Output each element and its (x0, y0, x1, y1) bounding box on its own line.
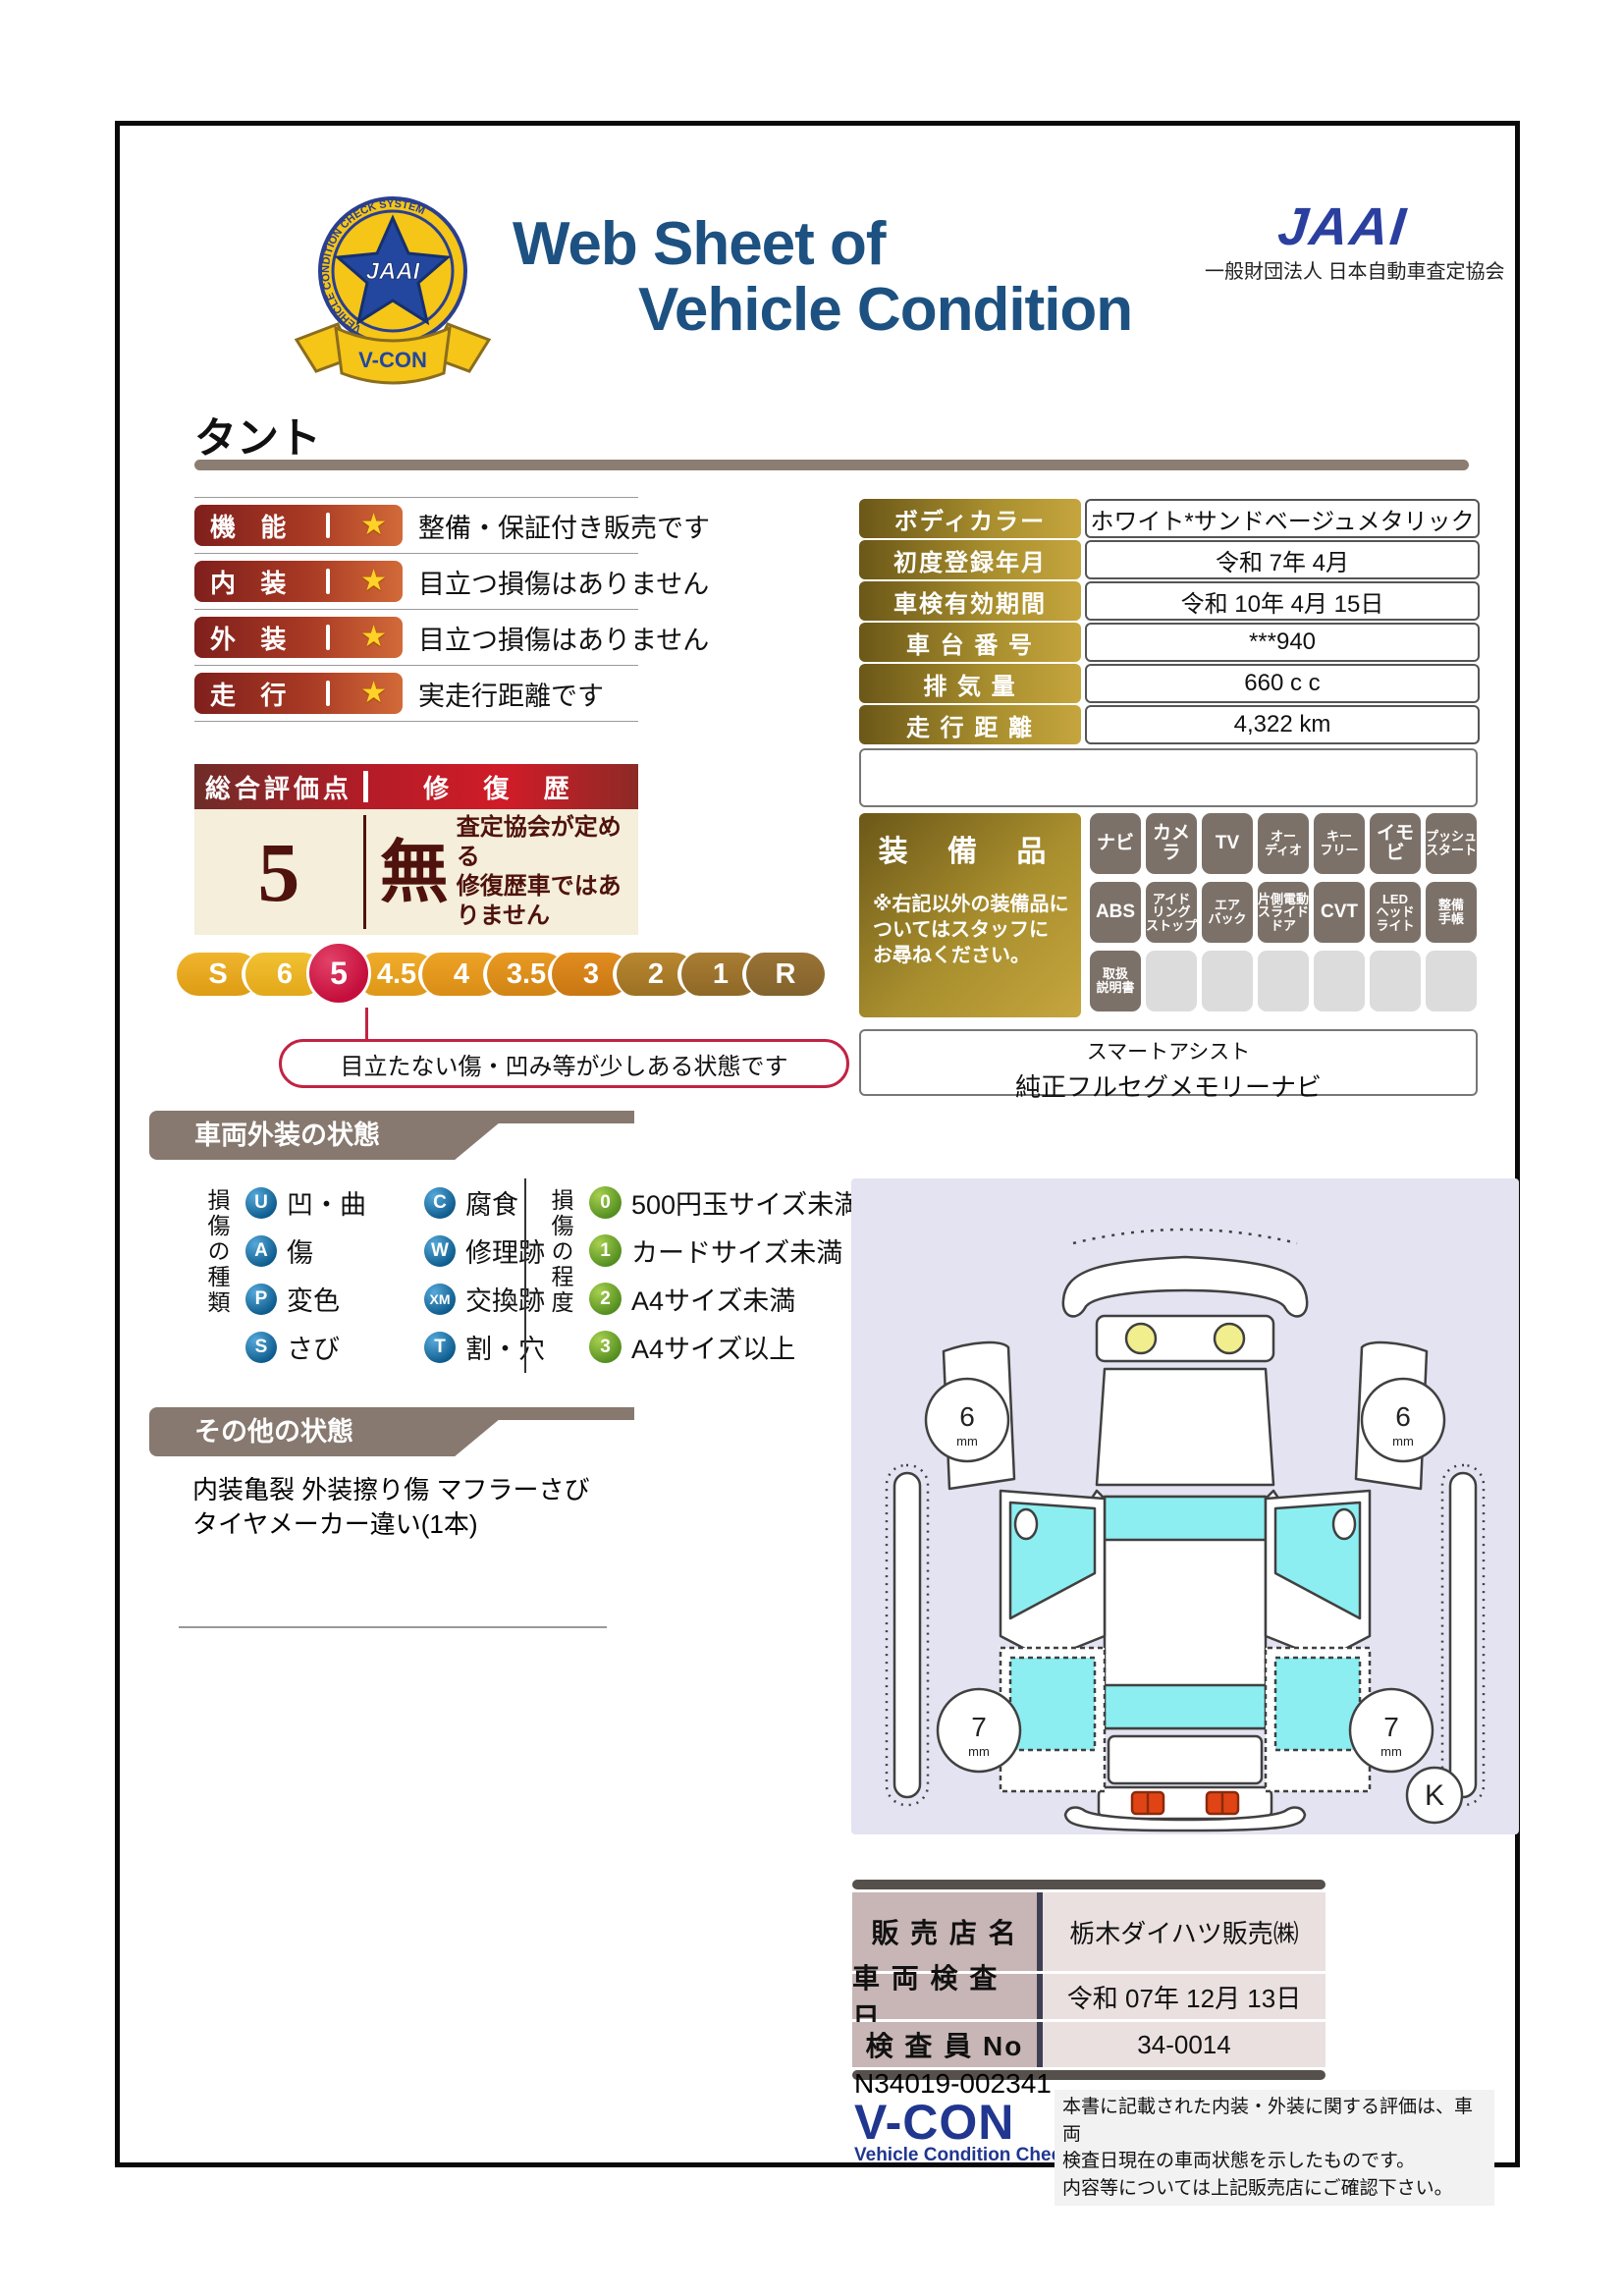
info-value: ホワイト*サンドベージュメタリック (1085, 499, 1480, 538)
table-row: 走 行 距 離 4,322 km (859, 705, 1480, 744)
equipment-extra-line1: スマートアシスト (861, 1036, 1476, 1066)
info-empty-row (859, 748, 1478, 807)
front-bumper (1063, 1257, 1307, 1316)
equipment-item-immobilizer: イモビ (1370, 813, 1421, 874)
overall-score-title: 総合評価点 (194, 769, 363, 805)
model-name: タント (194, 405, 321, 465)
scale-seg-5-selected: 5 (306, 941, 371, 1006)
info-value: 令和 7年 4月 (1085, 540, 1480, 579)
damage-type-icon-xm: XM (424, 1284, 456, 1315)
damage-degree-axis: 損傷の程度 (544, 1188, 577, 1361)
rating-comment: 実走行距離です (418, 675, 604, 713)
rating-comment: 目立つ損傷はありません (418, 619, 709, 657)
table-row: 車 両 検 査 日 令和 07年 12月 13日 (852, 1974, 1325, 2019)
scale-seg-r: R (742, 953, 825, 996)
equipment-item-empty (1146, 951, 1197, 1011)
damage-type-icon-c: C (424, 1187, 456, 1219)
legend-row: 0 500円玉サイズ未満 (589, 1178, 860, 1227)
score-description-bubble: 目立たない傷・凹み等が少しある状態です (279, 1039, 849, 1088)
bubble-stem (365, 1008, 368, 1041)
rating-row-exterior: 外 装 ★ 目立つ損傷はありません (194, 609, 638, 665)
equipment-item-pushstart: プッシュ スタート (1426, 813, 1477, 874)
tailgate (1109, 1736, 1262, 1783)
rating-row-mileage: 走 行 ★ 実走行距離です (194, 665, 638, 722)
info-value: ***940 (1085, 623, 1480, 662)
inspection-marker: K (1425, 1779, 1444, 1812)
mirror-left (1015, 1509, 1037, 1539)
legend-row: 1 カードサイズ未満 (589, 1227, 860, 1275)
tire-depth-rear-left: 7 (971, 1712, 987, 1742)
vehicle-info-table: ボディカラー ホワイト*サンドベージュメタリック 初度登録年月 令和 7年 4月… (859, 499, 1480, 746)
damage-type-icon-a: A (245, 1235, 277, 1267)
rear-door-window-left (1010, 1658, 1095, 1750)
equipment-item-cvt: CVT (1314, 882, 1365, 943)
tire-depth-rear-right: 7 (1383, 1712, 1399, 1742)
equipment-item-led: LED ヘッド ライト (1370, 882, 1421, 943)
legend-row: U 凹・曲 C 腐食 (245, 1178, 545, 1227)
mirror-right (1333, 1509, 1355, 1539)
headlight-left (1126, 1324, 1156, 1353)
rating-comment: 目立つ損傷はありません (418, 563, 709, 601)
table-row: 検 査 員 No 34-0014 (852, 2022, 1325, 2067)
equipment-note: ※右記以外の装備品に ついてはスタッフに お尋ねください。 (859, 870, 1081, 968)
legend-divider (524, 1178, 526, 1373)
legend-row: 2 A4サイズ未満 (589, 1275, 860, 1323)
side-sill-right (1450, 1473, 1476, 1797)
star-icon: ★ (360, 511, 387, 540)
legend-row: S さび T 割・穴 (245, 1323, 545, 1371)
table-row: 排 気 量 660 c c (859, 664, 1480, 703)
exterior-section-header: 車両外装の状態 (149, 1111, 634, 1160)
overall-score-box: 総合評価点 修 復 歴 5 無 査定協会が定める 修復歴車ではありません (194, 764, 638, 935)
overall-score-value: 5 (194, 809, 363, 935)
damage-degree-legend: 0 500円玉サイズ未満 1 カードサイズ未満 2 A4サイズ未満 3 A4サイ… (589, 1178, 860, 1371)
repair-history-title: 修 復 歴 (368, 769, 638, 805)
dealer-table-top-bar (852, 1880, 1325, 1889)
damage-degree-icon-3: 3 (589, 1331, 622, 1363)
dealer-value: 栃木ダイハツ販売㈱ (1043, 1892, 1325, 1971)
rating-comment: 整備・保証付き販売です (418, 507, 710, 545)
score-scale: S 6 5 4.5 4 3.5 3 2 1 R (177, 953, 825, 1006)
star-icon: ★ (360, 679, 387, 708)
equipment-item-keyfree: キー フリー (1314, 813, 1365, 874)
emblem-ribbon-text: V-CON (358, 348, 427, 372)
info-value: 660 c c (1085, 664, 1480, 703)
equipment-item-camera: カメラ (1146, 813, 1197, 874)
info-label: ボディカラー (859, 499, 1081, 538)
rear-door-window-right (1275, 1658, 1360, 1750)
windshield (1105, 1497, 1266, 1540)
equipment-panel: 装 備 品 ※右記以外の装備品に ついてはスタッフに お尋ねください。 (859, 813, 1081, 1017)
equipment-item-maintenance: 整備 手帳 (1426, 882, 1477, 943)
info-value: 4,322 km (1085, 705, 1480, 744)
info-label: 排 気 量 (859, 664, 1081, 703)
info-label: 走 行 距 離 (859, 705, 1081, 744)
front-panel (1097, 1316, 1273, 1361)
table-row: 車検有効期間 令和 10年 4月 15日 (859, 581, 1480, 621)
sheet-frame: VEHICLE CONDITION CHECK SYSTEM JAAI V-CO… (115, 121, 1520, 2167)
info-label: 初度登録年月 (859, 540, 1081, 579)
table-row: 初度登録年月 令和 7年 4月 (859, 540, 1480, 579)
tire-depth-unit: mm (968, 1744, 990, 1759)
rating-pill-mileage: 走 行 ★ (194, 673, 403, 714)
inspector-no-value: 34-0014 (1043, 2022, 1325, 2067)
inspection-date-label: 車 両 検 査 日 (852, 1974, 1037, 2019)
vcon-logo: V-CON (854, 2098, 1014, 2147)
rear-window (1105, 1685, 1266, 1728)
equipment-item-tv: TV (1202, 813, 1253, 874)
equipment-extra-box: スマートアシスト 純正フルセグメモリーナビ (859, 1029, 1478, 1096)
tire-depth-unit: mm (956, 1434, 978, 1449)
damage-type-icon-p: P (245, 1284, 277, 1315)
table-row: 車 台 番 号 ***940 (859, 623, 1480, 662)
rating-row-function: 機 能 ★ 整備・保証付き販売です (194, 497, 638, 553)
inspection-date-value: 令和 07年 12月 13日 (1043, 1974, 1325, 2019)
damage-type-icon-u: U (245, 1187, 277, 1219)
rating-row-interior: 内 装 ★ 目立つ損傷はありません (194, 553, 638, 609)
info-value: 令和 10年 4月 15日 (1085, 581, 1480, 621)
table-row: ボディカラー ホワイト*サンドベージュメタリック (859, 499, 1480, 538)
vcon-emblem: VEHICLE CONDITION CHECK SYSTEM JAAI V-CO… (277, 185, 509, 393)
equipment-item-empty (1314, 951, 1365, 1011)
other-condition-notes: 内装亀裂 外装擦り傷 マフラーさび タイヤメーカー違い(1本) (192, 1473, 644, 1542)
rating-list: 機 能 ★ 整備・保証付き販売です 内 装 ★ 目立つ損傷はありません 外 装 (194, 497, 638, 722)
damage-type-axis: 損傷の種類 (200, 1188, 234, 1361)
legend-row: P 変色 XM 交換跡 (245, 1275, 545, 1323)
notes-underline (179, 1626, 607, 1628)
sheet-title-line2: Vehicle Condition (638, 275, 1132, 345)
equipment-item-audio: オー ディオ (1258, 813, 1309, 874)
side-sill-left (894, 1473, 920, 1797)
repair-history-value: 無 査定協会が定める 修復歴車ではありません (366, 809, 638, 935)
equipment-item-idlingstop: アイド リング ストップ (1146, 882, 1197, 943)
car-damage-diagram: 6 mm 6 mm 7 mm 7 mm K (851, 1178, 1519, 1834)
damage-type-legend: U 凹・曲 C 腐食 A 傷 W 修理跡 (245, 1178, 545, 1371)
header-divider (194, 460, 1469, 470)
damage-type-icon-s: S (245, 1332, 277, 1363)
equipment-item-empty (1202, 951, 1253, 1011)
front-bumper-outline (1073, 1230, 1297, 1243)
equipment-extra-line2: 純正フルセグメモリーナビ (861, 1067, 1476, 1104)
equipment-item-empty (1370, 951, 1421, 1011)
vehicle-condition-sheet: VEHICLE CONDITION CHECK SYSTEM JAAI V-CO… (0, 0, 1623, 2296)
other-section-header: その他の状態 (149, 1407, 634, 1456)
equipment-item-abs: ABS (1090, 882, 1141, 943)
legend-row: A 傷 W 修理跡 (245, 1227, 545, 1275)
tire-depth-front-left: 6 (959, 1401, 975, 1432)
rating-pill-exterior: 外 装 ★ (194, 617, 403, 658)
repair-note: 査定協会が定める 修復歴車ではありません (457, 813, 638, 931)
rating-pill-function: 機 能 ★ (194, 505, 403, 546)
equipment-item-manual: 取扱 説明書 (1090, 951, 1141, 1011)
headlight-right (1215, 1324, 1244, 1353)
equipment-item-empty (1426, 951, 1477, 1011)
dealer-table: 販 売 店 名 栃木ダイハツ販売㈱ 車 両 検 査 日 令和 07年 12月 1… (852, 1880, 1325, 2080)
equipment-item-airbag: エア バック (1202, 882, 1253, 943)
info-label: 車 台 番 号 (859, 623, 1081, 662)
equipment-item-empty (1258, 951, 1309, 1011)
damage-type-icon-t: T (424, 1332, 456, 1363)
tire-depth-unit: mm (1392, 1434, 1414, 1449)
left-side (887, 1342, 1105, 1805)
hood (1097, 1369, 1273, 1485)
equipment-item-navi: ナビ (1090, 813, 1141, 874)
damage-degree-icon-1: 1 (589, 1234, 622, 1267)
rear-panel (1099, 1787, 1271, 1819)
star-icon: ★ (360, 567, 387, 596)
equipment-grid: ナビ カメラ TV オー ディオ キー フリー イモビ プッシュ スタート AB… (1090, 813, 1477, 1011)
legend-row: 3 A4サイズ以上 (589, 1323, 860, 1371)
damage-degree-icon-0: 0 (589, 1186, 622, 1219)
jaai-subtitle: 一般財団法人 日本自動車査定協会 (1205, 255, 1505, 284)
tire-depth-front-right: 6 (1395, 1401, 1411, 1432)
equipment-title: 装 備 品 (859, 813, 1081, 870)
damage-degree-icon-2: 2 (589, 1283, 622, 1315)
star-icon: ★ (360, 623, 387, 652)
info-label: 車検有効期間 (859, 581, 1081, 621)
right-side (1266, 1342, 1484, 1805)
tire-depth-unit: mm (1380, 1744, 1402, 1759)
overall-score-header: 総合評価点 修 復 歴 (194, 764, 638, 809)
rating-pill-interior: 内 装 ★ (194, 561, 403, 602)
equipment-item-powerslide: 片側電動 スライド ドア (1258, 882, 1309, 943)
sheet-title-line1: Web Sheet of (513, 209, 886, 279)
damage-type-icon-w: W (424, 1235, 456, 1267)
repair-none-kanji: 無 (380, 842, 449, 903)
disclaimer-text: 本書に記載された内装・外装に関する評価は、車両 検査日現在の車両状態を示したもの… (1055, 2090, 1494, 2206)
jaai-logo: JAAI (1275, 196, 1411, 257)
car-unfolded-view: 6 mm 6 mm 7 mm 7 mm K (851, 1178, 1519, 1834)
inspector-no-label: 検 査 員 No (852, 2022, 1037, 2067)
emblem-jaai-text: JAAI (366, 258, 421, 285)
